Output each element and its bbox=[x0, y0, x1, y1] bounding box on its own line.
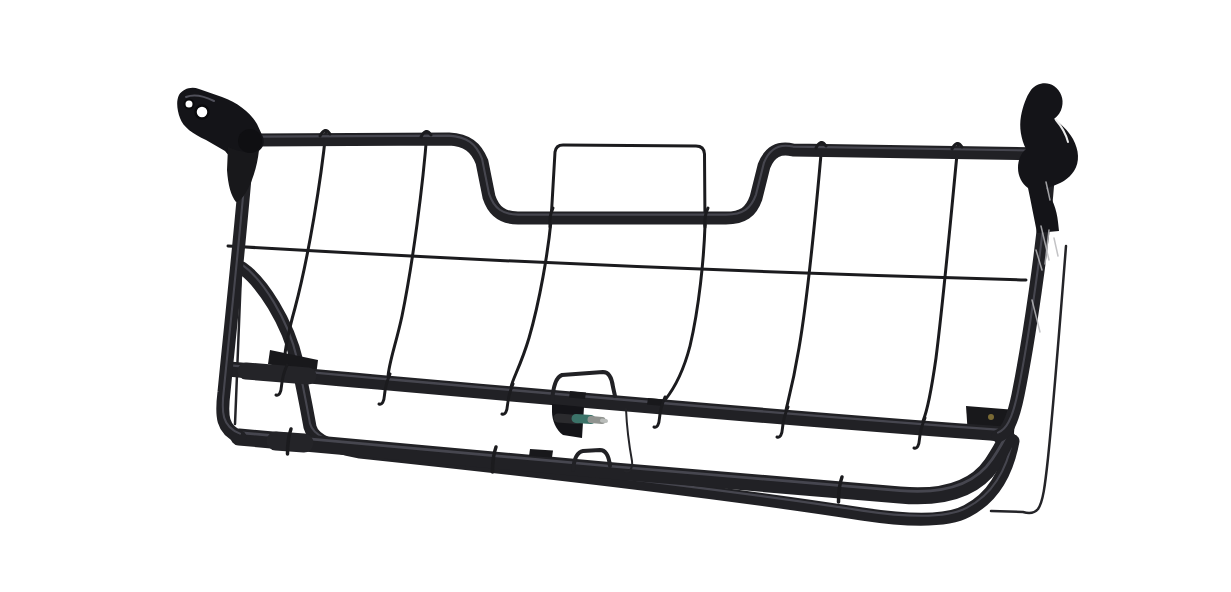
right-bracket-body bbox=[1018, 83, 1078, 233]
middle-rail bbox=[228, 369, 1004, 434]
product-photo-canvas: Black tubular steel rack frame with wire… bbox=[0, 0, 1231, 592]
scratch-mark-3 bbox=[1054, 238, 1058, 256]
left-bracket-hole-small bbox=[185, 100, 194, 109]
top-rail bbox=[254, 139, 1043, 218]
left-rail-boss bbox=[238, 129, 262, 153]
stand-frame-tube bbox=[242, 268, 1013, 519]
bottom-rail-collar bbox=[276, 441, 304, 443]
left-bracket-hole-large bbox=[196, 106, 209, 119]
rail-tab-3 bbox=[529, 449, 553, 458]
latch-hanging-wire bbox=[625, 409, 632, 472]
mesh-wire-5 bbox=[786, 143, 822, 410]
middle-rail-sleeve bbox=[246, 371, 308, 376]
mesh-wire-6 bbox=[923, 144, 958, 421]
gusset-bolt-speck bbox=[988, 414, 994, 420]
left-corner-body bbox=[227, 147, 259, 202]
horizontal-mesh-wire bbox=[228, 246, 1026, 280]
cargo-rack-frame-illustration bbox=[0, 0, 1231, 592]
mesh-wire-3 bbox=[511, 221, 551, 387]
latch-bolt-tip-end bbox=[602, 421, 606, 422]
mesh-wire-4 bbox=[665, 225, 705, 400]
